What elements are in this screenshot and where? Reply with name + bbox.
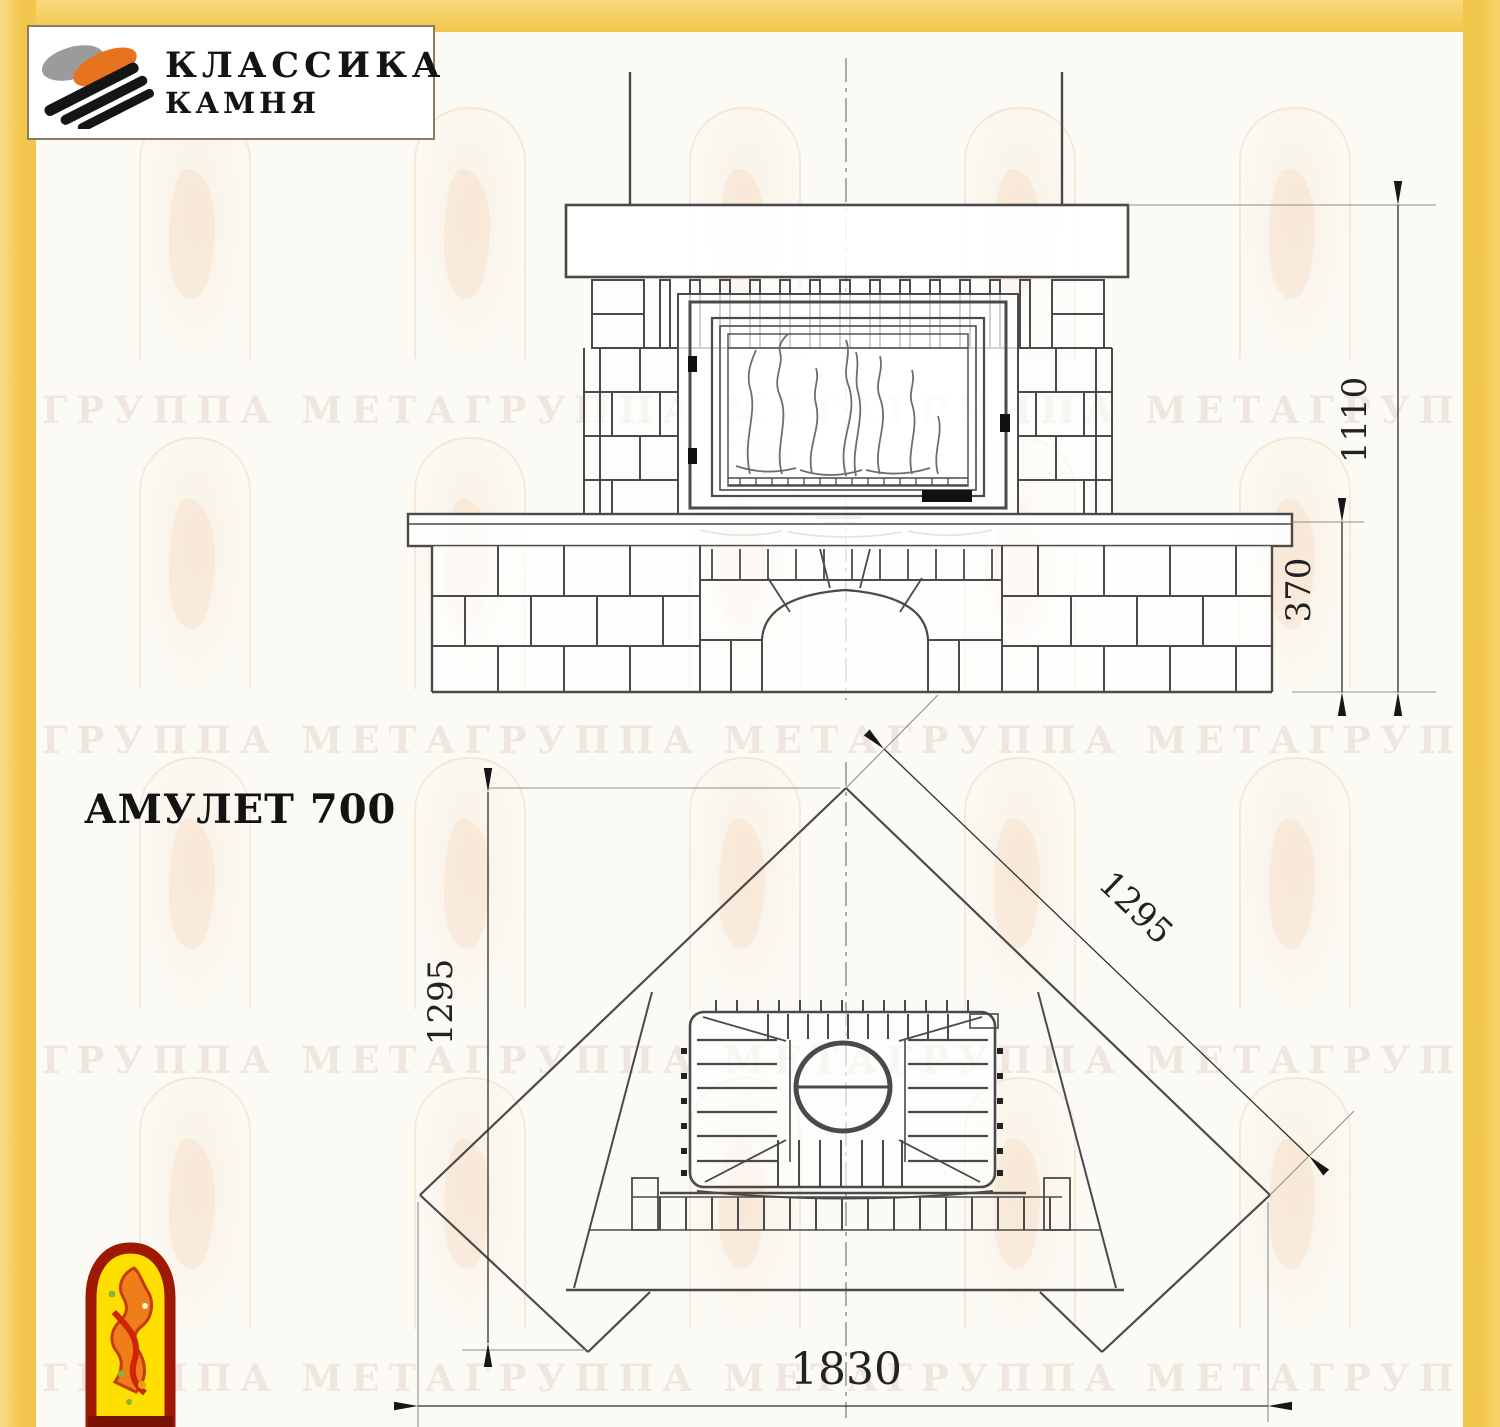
- dim-bench-height: 370: [1279, 558, 1319, 623]
- dim-left-depth: 1295: [421, 959, 461, 1046]
- dim-total-height: 1110: [1335, 377, 1375, 464]
- stone-logo-icon: [35, 37, 163, 129]
- company-logo: КЛАССИКА КАМНЯ: [27, 25, 435, 140]
- logo-text-line2: КАМНЯ: [165, 86, 445, 120]
- plan-view: [418, 695, 1354, 1427]
- fireplace-technical-drawing: 1110 370: [0, 0, 1500, 1427]
- catalog-page: ГРУППА МЕТАГРУППА МЕТАГРУППА МЕТАГРУППА …: [0, 0, 1500, 1427]
- meta-group-emblem-icon: [84, 1242, 177, 1427]
- logo-text-line1: КЛАССИКА: [165, 46, 445, 86]
- frame-right-bar: [1463, 0, 1500, 1427]
- frame-left-bar: [0, 0, 36, 1427]
- dim-right-depth: 1295: [1091, 864, 1181, 953]
- dim-front-width: 1830: [790, 1344, 902, 1395]
- model-title: АМУЛЕТ 700: [84, 786, 396, 833]
